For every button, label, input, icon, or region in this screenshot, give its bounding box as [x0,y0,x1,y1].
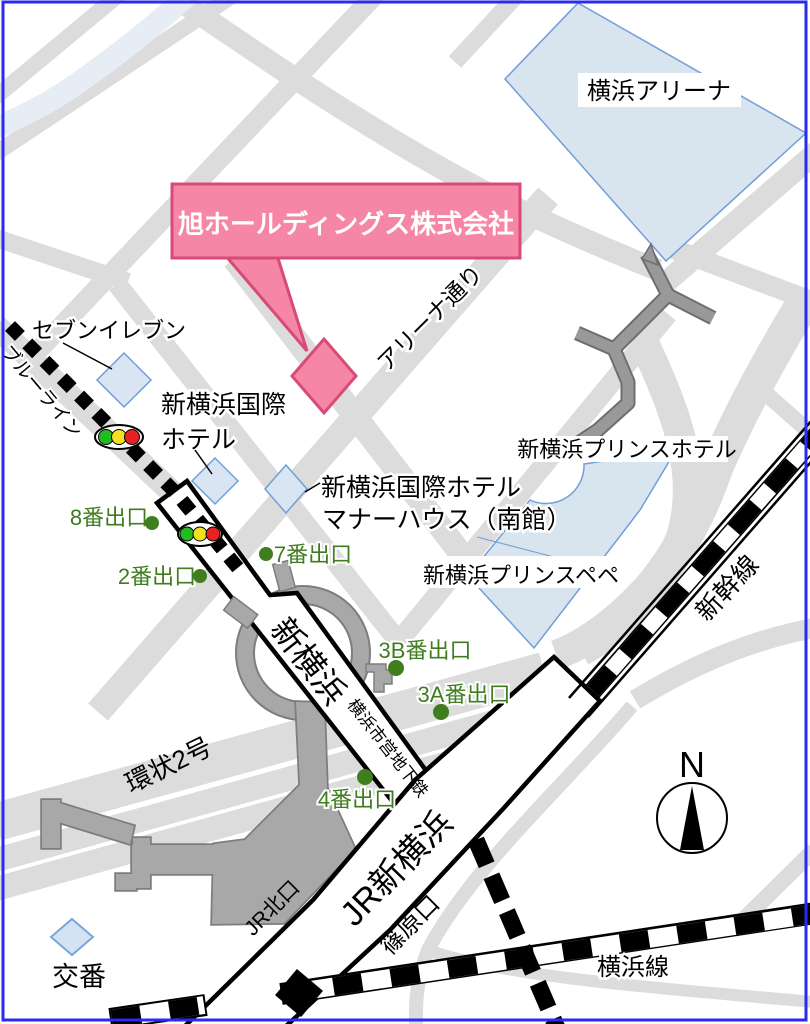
svg-text:横浜アリーナ: 横浜アリーナ [587,78,731,105]
svg-text:4番出口: 4番出口 [318,787,396,812]
svg-text:8番出口: 8番出口 [70,505,148,530]
svg-text:新横浜国際ホテル: 新横浜国際ホテル [321,474,521,502]
svg-text:2番出口: 2番出口 [118,564,196,589]
svg-text:旭ホールディングス株式会社: 旭ホールディングス株式会社 [178,209,514,239]
svg-text:交番: 交番 [52,962,106,992]
svg-text:マナーハウス（南館）: マナーハウス（南館） [322,506,572,534]
svg-text:3A番出口: 3A番出口 [418,682,511,707]
svg-text:7番出口: 7番出口 [274,542,352,567]
svg-text:新横浜プリンスホテル: 新横浜プリンスホテル [517,437,737,462]
svg-text:ホテル: ホテル [161,426,236,454]
svg-text:セブンイレブン: セブンイレブン [32,318,186,343]
svg-text:横浜線: 横浜線 [597,954,669,981]
svg-text:N: N [679,744,705,785]
svg-text:3B番出口: 3B番出口 [379,638,472,663]
svg-text:新横浜プリンスペペ: 新横浜プリンスペペ [423,563,619,588]
svg-text:新横浜国際: 新横浜国際 [161,391,286,419]
